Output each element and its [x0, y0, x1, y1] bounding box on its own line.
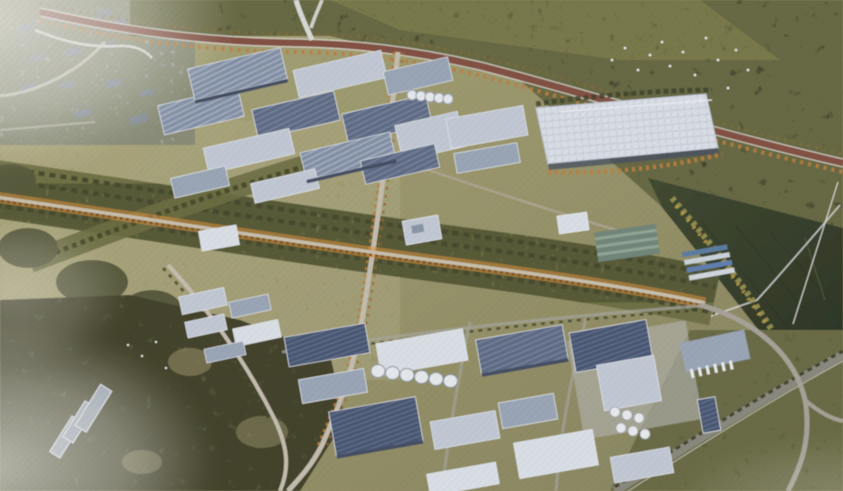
rendering-canvas [0, 0, 843, 491]
photo-haze [0, 0, 843, 491]
moire-overlay [0, 0, 843, 491]
aerial-rendering-photo [0, 0, 843, 491]
